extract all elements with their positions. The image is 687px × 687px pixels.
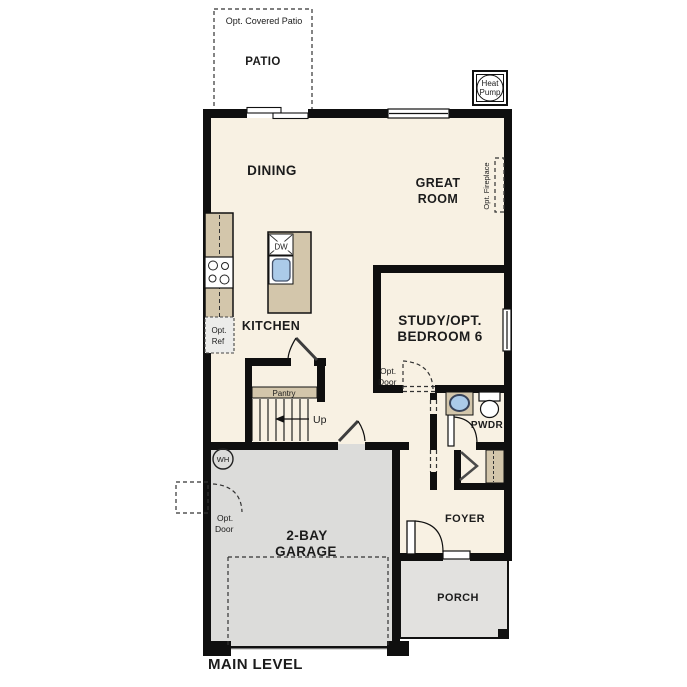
garage-label-2: GARAGE [275,544,337,559]
garage-opt-door-label-1: Opt. [217,513,233,523]
pwdr-label: PWDR [471,420,504,431]
wall-closet-bottom [454,483,504,490]
floor-plan: Heat Pump Opt. Fireplace Opt. Ref DW Pan… [0,0,687,687]
opt-fireplace-label: Opt. Fireplace [482,162,491,209]
wall-garage-right [392,442,400,650]
wall-stair-left [245,358,252,442]
study-label-1: STUDY/OPT. [398,313,482,328]
front-door-leaf [407,521,415,554]
toilet-tank [479,392,500,401]
pwdr-sink [450,395,469,411]
great-room-label-1: GREAT [416,176,461,190]
wall-porch-top-right [470,553,512,561]
pantry: Pantry [252,387,317,398]
dishwasher-label: DW [274,243,288,252]
garage-door-threshold [231,646,387,649]
wall-left [203,109,211,656]
study-opt-door-label-1: Opt. [380,366,396,376]
porch-label: PORCH [437,592,479,604]
pwdr-fixtures [446,392,500,418]
garage-opt-door-label-2: Door [215,524,234,534]
patio-label: PATIO [245,56,280,68]
wall-pwdr-closet-divider [476,442,504,450]
patio-slider-panel-b [273,113,308,119]
foyer-label: FOYER [445,513,485,525]
porch-post [498,629,507,638]
stairs-up-label: Up [313,414,327,426]
heat-pump-label-2: Pump [480,88,501,97]
island-sink [273,259,291,281]
toilet-bowl [481,401,499,418]
opt-ref-label-1: Opt. [211,326,226,335]
kitchen-label: KITCHEN [242,319,300,333]
wall-garage-stub-left [203,641,231,656]
water-heater-label: WH [217,455,230,464]
cooktop [205,257,233,288]
garage-label-1: 2-BAY [286,528,327,543]
heat-pump-label-1: Heat [482,79,500,88]
kitchen-wall-counter [205,213,233,320]
plan-title: MAIN LEVEL [208,656,303,673]
heat-pump-unit: Heat Pump [473,71,507,105]
wall-stair-right [317,358,325,402]
floor-plan-canvas: Heat Pump Opt. Fireplace Opt. Ref DW Pan… [0,0,687,687]
opt-covered-patio-label: Opt. Covered Patio [226,16,303,26]
opt-ref-label-2: Ref [212,337,225,346]
opt-ref-box [205,317,234,353]
patio-slider-panel-a [247,108,281,114]
opt-ref: Opt. Ref [205,317,234,353]
coat-closet-shelf [486,450,504,483]
wall-study-top [373,265,512,273]
dining-label: DINING [247,163,297,178]
study-opt-door-label-2: Door [378,377,397,387]
wall-garage-top-right [365,442,409,450]
front-door-threshold [443,551,470,559]
kitchen-island: DW [268,232,311,313]
study-label-2: BEDROOM 6 [397,329,482,344]
pantry-label: Pantry [272,389,295,398]
pwdr-door-leaf [448,415,454,446]
great-room-label-2: ROOM [418,192,459,206]
